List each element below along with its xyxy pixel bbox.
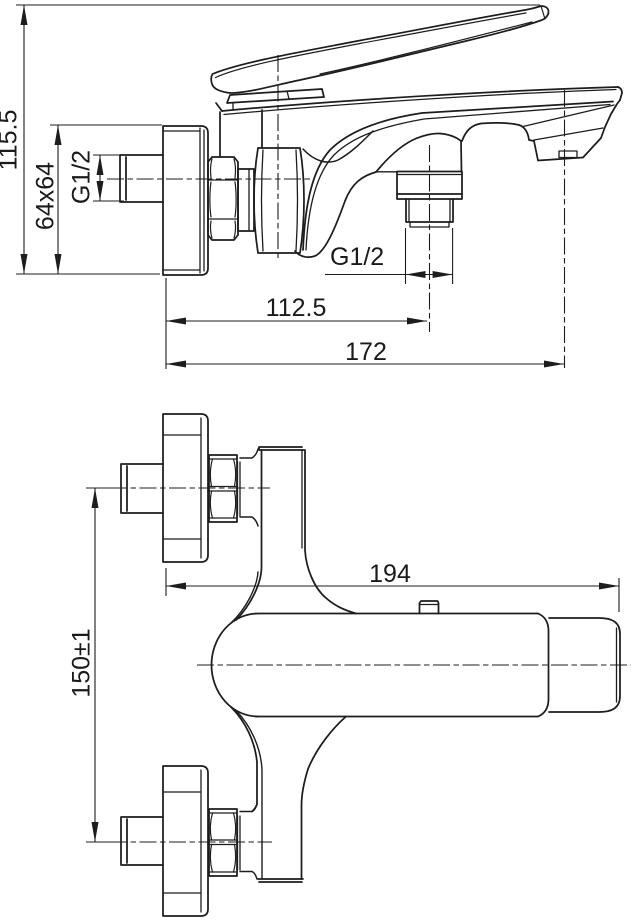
svg-text:G1/2: G1/2 [68, 150, 96, 204]
svg-text:112.5: 112.5 [266, 294, 327, 322]
svg-text:G1/2: G1/2 [330, 243, 384, 271]
svg-text:64x64: 64x64 [32, 162, 60, 230]
svg-text:150±1: 150±1 [68, 628, 96, 697]
svg-text:115.5: 115.5 [0, 110, 23, 171]
svg-text:194: 194 [369, 560, 411, 588]
svg-text:172: 172 [345, 338, 387, 366]
